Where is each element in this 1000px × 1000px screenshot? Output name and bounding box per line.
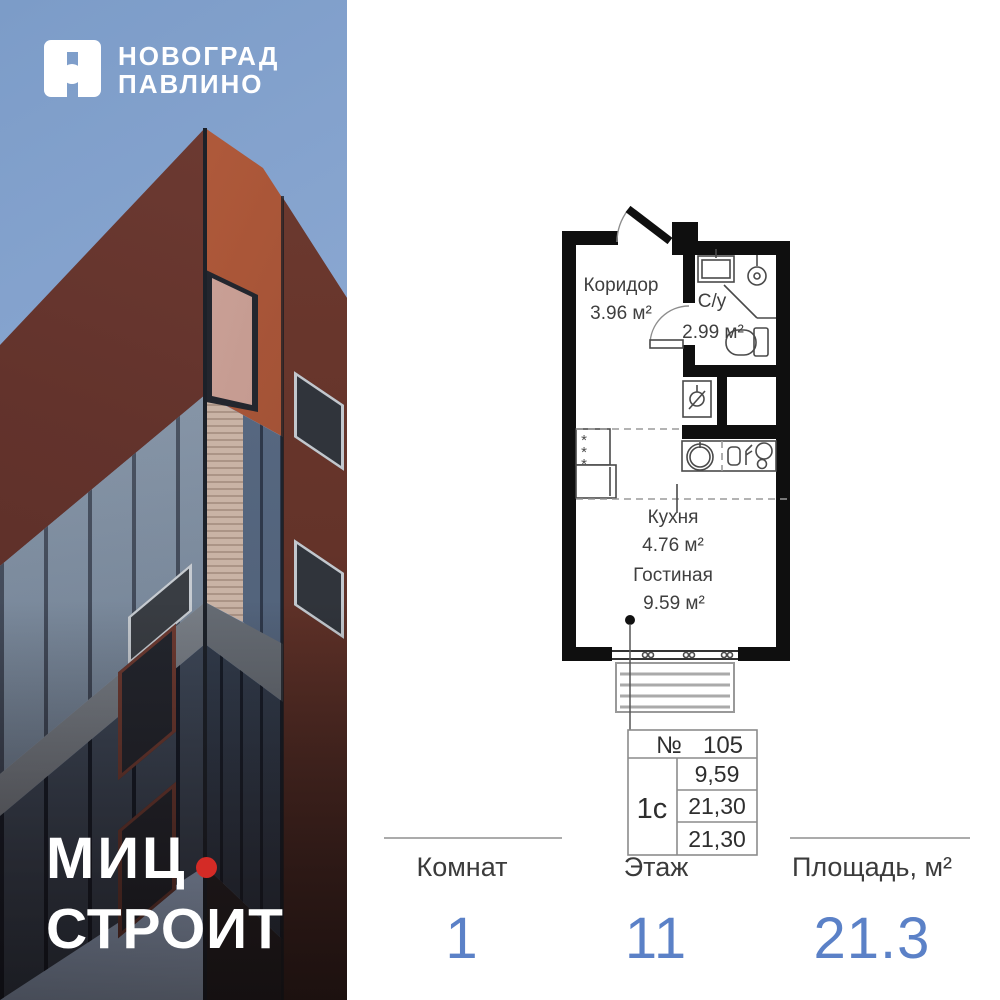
brand-dot-icon [196,857,217,878]
area-living-value: 9,59 [695,761,740,787]
floor-plan: * * * Коридор 3.96 м² [540,185,810,865]
plan-leader-dot [625,615,635,625]
room-area-bathroom: 2.99 м² [682,322,744,343]
stat-divider-line [790,837,970,839]
area-total-value: 21,30 [688,793,746,819]
stat-floor-value: 11 [556,905,756,972]
stat-area-label: Площадь, м² [772,852,972,883]
area-reduced-value: 21,30 [688,826,746,852]
room-area-corridor: 3.96 м² [590,303,652,324]
project-name: НОВОГРАД ПАВЛИНО [118,42,279,98]
stat-divider-line [384,837,562,839]
vent-fan-icon [683,381,711,417]
room-area-kitchen: 4.76 м² [642,535,704,556]
stat-floor: Этаж 11 [556,852,756,972]
project-logo-icon [44,40,101,97]
developer-tagline: СТРОИТ [46,901,284,958]
room-label-living: Гостиная [633,565,713,586]
room-label-corridor: Коридор [583,275,658,296]
apartment-card: НОВОГРАД ПАВЛИНО МИЦ СТРОИТ [0,0,1000,1000]
window [612,651,738,659]
building-photo: НОВОГРАД ПАВЛИНО МИЦ СТРОИТ [0,0,347,1000]
closet: * * * [576,429,616,498]
room-label-kitchen: Кухня [648,507,699,528]
stat-rooms-value: 1 [362,905,562,972]
developer-wordmark: МИЦ СТРОИТ [46,830,284,958]
bathroom-partition [724,285,776,318]
entrance-door [617,209,670,242]
stat-area-value: 21.3 [772,905,972,972]
balcony [616,663,734,712]
layout-type: 1с [637,793,668,825]
spec-table: № 105 1с 9,59 21,30 21,30 [628,730,757,855]
stat-rooms: Комнат 1 [362,852,562,972]
unit-number-sign: № [656,732,682,759]
room-label-bathroom: С/у [698,291,727,312]
kitchen-counter [682,441,776,471]
project-logo: НОВОГРАД ПАВЛИНО [44,40,344,100]
project-name-line2: ПАВЛИНО [118,70,279,98]
developer-name: МИЦ [46,830,284,888]
unit-number: 105 [703,732,743,759]
project-name-line1: НОВОГРАД [118,42,279,70]
stat-area: Площадь, м² 21.3 [772,852,972,972]
stat-floor-label: Этаж [556,852,756,883]
stat-rooms-label: Комнат [362,852,562,883]
room-area-living: 9.59 м² [643,593,705,614]
shower-icon [748,255,766,285]
